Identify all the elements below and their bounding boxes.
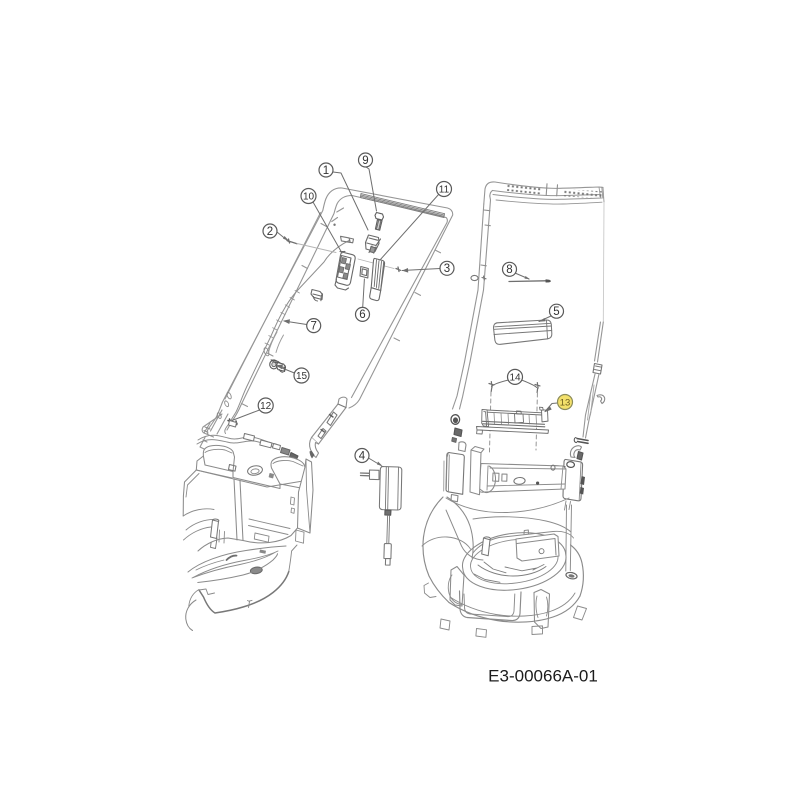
svg-text:5: 5 xyxy=(553,306,559,318)
svg-text:2: 2 xyxy=(267,226,273,238)
svg-text:1: 1 xyxy=(323,165,329,177)
svg-text:8: 8 xyxy=(506,264,512,276)
svg-text:7: 7 xyxy=(310,320,316,332)
svg-text:E3-00066A-01: E3-00066A-01 xyxy=(488,667,598,686)
svg-text:11: 11 xyxy=(439,185,450,196)
svg-text:9: 9 xyxy=(362,155,368,167)
svg-text:12: 12 xyxy=(260,401,272,412)
svg-text:6: 6 xyxy=(359,309,365,321)
svg-text:15: 15 xyxy=(296,371,308,382)
svg-text:14: 14 xyxy=(509,373,521,384)
svg-text:10: 10 xyxy=(303,192,315,203)
svg-text:3: 3 xyxy=(444,263,450,275)
svg-text:13: 13 xyxy=(560,398,571,409)
svg-text:4: 4 xyxy=(359,450,366,462)
